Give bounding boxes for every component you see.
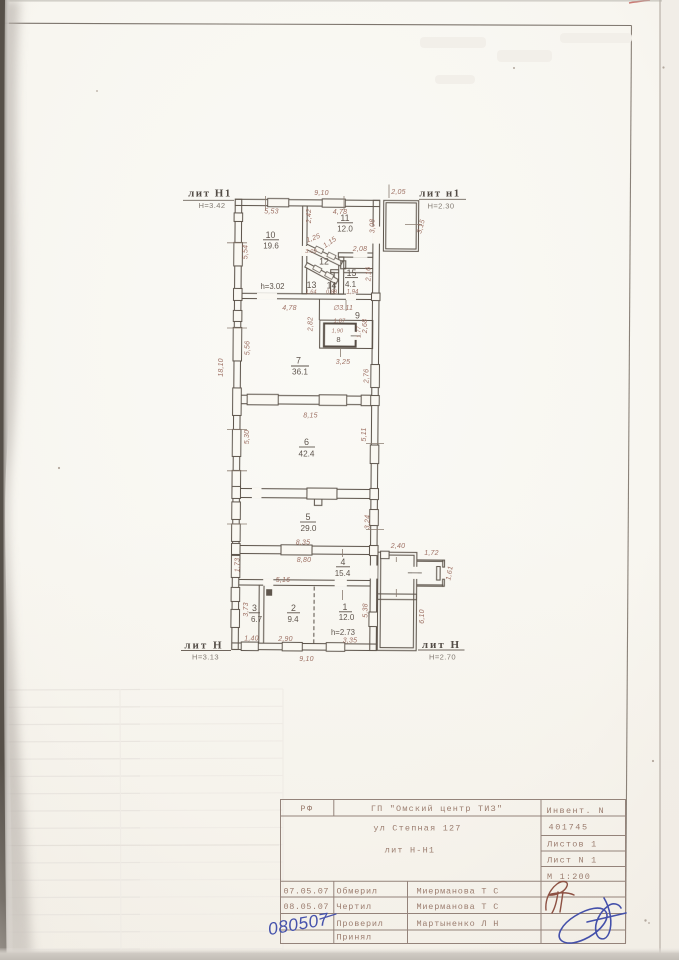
svg-text:лит Н-Н1: лит Н-Н1 bbox=[385, 846, 435, 856]
svg-text:18,10: 18,10 bbox=[218, 358, 225, 377]
svg-text:8,15: 8,15 bbox=[303, 413, 317, 420]
svg-text:6.7: 6.7 bbox=[251, 615, 263, 624]
svg-text:Н=2.70: Н=2.70 bbox=[429, 652, 456, 661]
svg-text:1: 1 bbox=[343, 602, 348, 612]
svg-text:1,40: 1,40 bbox=[244, 636, 258, 643]
svg-text:3,24: 3,24 bbox=[365, 515, 372, 529]
svg-text:2,82: 2,82 bbox=[308, 317, 315, 332]
svg-text:4,78: 4,78 bbox=[333, 209, 347, 216]
svg-text:12: 12 bbox=[319, 257, 329, 267]
svg-text:6,10: 6,10 bbox=[419, 609, 426, 623]
svg-text:9: 9 bbox=[355, 311, 360, 321]
svg-text:Проверил: Проверил bbox=[337, 919, 384, 929]
svg-text:0,88: 0,88 bbox=[326, 289, 338, 295]
svg-text:5,30: 5,30 bbox=[244, 430, 251, 444]
svg-text:1,73: 1,73 bbox=[235, 558, 242, 572]
svg-text:2,08: 2,08 bbox=[352, 246, 367, 253]
svg-text:29.0: 29.0 bbox=[301, 524, 317, 533]
svg-text:9,10: 9,10 bbox=[314, 190, 328, 197]
svg-text:1,90: 1,90 bbox=[332, 329, 344, 335]
svg-text:4: 4 bbox=[341, 557, 346, 567]
svg-text:h=2.73: h=2.73 bbox=[331, 628, 355, 637]
svg-text:Инвент. N: Инвент. N bbox=[547, 806, 606, 816]
svg-text:5: 5 bbox=[305, 512, 310, 522]
svg-text:ГП "Омский центр ТИЗ": ГП "Омский центр ТИЗ" bbox=[371, 804, 503, 814]
svg-text:5,16: 5,16 bbox=[276, 577, 290, 584]
svg-text:Мартыненко Л Н: Мартыненко Л Н bbox=[417, 919, 500, 929]
svg-text:5,56: 5,56 bbox=[245, 341, 252, 355]
svg-text:ул Степная 127: ул Степная 127 bbox=[373, 824, 461, 834]
svg-text:Чертил: Чертил bbox=[337, 902, 372, 912]
svg-text:5,54: 5,54 bbox=[243, 245, 250, 259]
svg-text:5,11: 5,11 bbox=[361, 428, 368, 442]
svg-text:3,73: 3,73 bbox=[243, 602, 250, 616]
svg-text:лит Н: лит Н bbox=[422, 639, 461, 651]
svg-text:РФ: РФ bbox=[300, 804, 313, 814]
svg-text:Н=3.13: Н=3.13 bbox=[192, 652, 219, 661]
svg-text:12.0: 12.0 bbox=[339, 613, 355, 622]
svg-text:3,08: 3,08 bbox=[370, 219, 377, 233]
svg-text:36.1: 36.1 bbox=[292, 368, 308, 377]
svg-text:Лист N 1: Лист N 1 bbox=[546, 856, 597, 866]
svg-text:2,76: 2,76 bbox=[364, 369, 371, 384]
svg-text:401745: 401745 bbox=[549, 823, 589, 833]
svg-text:8,80: 8,80 bbox=[297, 557, 311, 564]
svg-text:3.09: 3.09 bbox=[305, 249, 317, 255]
svg-text:1,87: 1,87 bbox=[334, 319, 346, 325]
svg-text:9,10: 9,10 bbox=[299, 656, 313, 663]
svg-text:3,25: 3,25 bbox=[336, 359, 350, 366]
svg-text:Миерманова Т С: Миерманова Т С bbox=[417, 887, 500, 897]
svg-text:7: 7 bbox=[296, 356, 301, 366]
svg-text:1,94: 1,94 bbox=[347, 290, 359, 296]
svg-text:2,42: 2,42 bbox=[306, 209, 313, 224]
svg-text:Листов 1: Листов 1 bbox=[546, 840, 597, 850]
svg-text:2,05: 2,05 bbox=[390, 189, 405, 196]
svg-text:3,35: 3,35 bbox=[343, 638, 357, 645]
svg-text:лит Н1: лит Н1 bbox=[188, 188, 232, 200]
svg-text:3: 3 bbox=[252, 603, 257, 613]
svg-text:М 1:200: М 1:200 bbox=[547, 872, 591, 882]
svg-text:5,38: 5,38 bbox=[363, 603, 370, 617]
svg-text:5,53: 5,53 bbox=[264, 209, 278, 216]
svg-text:4,78: 4,78 bbox=[282, 305, 296, 312]
svg-text:лит н1: лит н1 bbox=[419, 188, 461, 200]
svg-text:6: 6 bbox=[304, 437, 309, 447]
svg-text:4.1: 4.1 bbox=[345, 280, 357, 289]
svg-text:Н=3.42: Н=3.42 bbox=[198, 201, 225, 210]
svg-text:Принял: Принял bbox=[337, 933, 372, 943]
svg-text:15.4: 15.4 bbox=[335, 569, 351, 578]
svg-text:9.4: 9.4 bbox=[287, 615, 299, 624]
svg-text:8,35: 8,35 bbox=[296, 540, 310, 547]
svg-text:Миерманова Т С: Миерманова Т С bbox=[417, 902, 500, 912]
svg-text:1,72: 1,72 bbox=[424, 550, 438, 557]
svg-text:h=3.02: h=3.02 bbox=[260, 282, 284, 291]
svg-text:2,90: 2,90 bbox=[277, 636, 292, 643]
svg-text:2,16: 2,16 bbox=[366, 267, 373, 282]
svg-text:15: 15 bbox=[347, 268, 357, 278]
svg-text:07.05.07: 07.05.07 bbox=[284, 887, 330, 897]
svg-text:1,64: 1,64 bbox=[306, 289, 317, 295]
svg-text:2: 2 bbox=[291, 603, 296, 613]
svg-text:19.6: 19.6 bbox=[263, 242, 279, 251]
svg-text:2,68: 2,68 bbox=[362, 319, 369, 334]
svg-text:лит Н: лит Н bbox=[184, 640, 223, 652]
svg-text:8: 8 bbox=[336, 335, 340, 344]
svg-text:12.0: 12.0 bbox=[337, 225, 353, 234]
svg-text:10: 10 bbox=[266, 230, 276, 240]
svg-text:Н=2.30: Н=2.30 bbox=[427, 201, 454, 210]
svg-text:Обмерил: Обмерил bbox=[337, 887, 378, 897]
svg-text:∅3.11: ∅3.11 bbox=[333, 305, 353, 312]
svg-text:2,40: 2,40 bbox=[390, 543, 405, 550]
svg-text:42.4: 42.4 bbox=[299, 450, 315, 459]
